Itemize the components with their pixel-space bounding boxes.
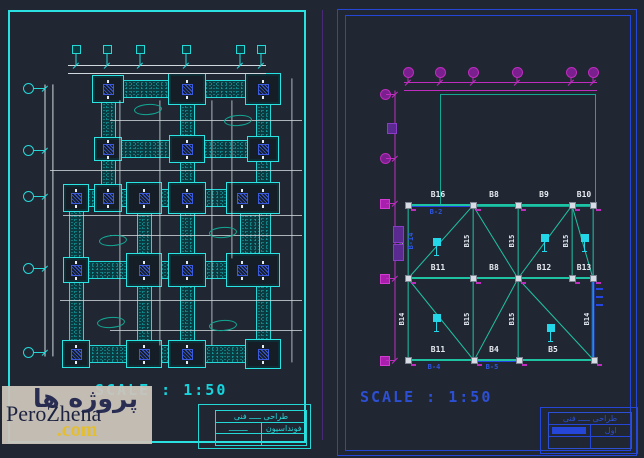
beam-node — [592, 358, 597, 363]
grid-bubble — [468, 67, 479, 78]
beam-label: B11 — [431, 263, 445, 272]
grid-bubble — [435, 67, 446, 78]
node-tick — [575, 209, 580, 211]
section-mark-icon — [547, 324, 555, 332]
beam-label-rotated: B15 — [463, 313, 471, 326]
upper-storey-outline — [440, 94, 596, 207]
beam — [408, 277, 473, 278]
beam — [592, 205, 593, 278]
right-title-row3-left — [549, 437, 590, 448]
beam-label: B5 — [548, 345, 558, 354]
node-tick — [575, 282, 580, 284]
dim-tick — [392, 275, 399, 282]
beam-node — [591, 203, 596, 208]
beam-label: B13 — [577, 263, 591, 272]
grid-bubble — [380, 199, 390, 209]
right-title-filled-bar — [552, 427, 586, 434]
beam-node — [517, 358, 522, 363]
section-mark-foot — [582, 251, 587, 252]
beam-label: B9 — [539, 190, 549, 199]
beam-label: B12 — [537, 263, 551, 272]
beam-node — [570, 203, 575, 208]
node-tick — [411, 282, 416, 284]
beam-label: B4 — [489, 345, 499, 354]
beam — [407, 205, 408, 360]
beam-label-rotated: B14 — [583, 313, 591, 326]
beam-node — [406, 358, 411, 363]
left-title-row3-left — [216, 434, 261, 445]
grid-bubble — [566, 67, 577, 78]
node-tick — [476, 209, 481, 211]
beam-node — [516, 203, 521, 208]
beam-label: B11 — [431, 345, 445, 354]
beam-node — [570, 276, 575, 281]
highlighted-beam — [592, 278, 595, 360]
node-tick — [596, 282, 601, 284]
node-tick — [411, 364, 416, 366]
right-title-row3-right — [590, 437, 632, 448]
grid-bubble — [512, 67, 523, 78]
grid-bubble — [380, 89, 391, 100]
section-mark-foot — [548, 341, 553, 342]
beam — [472, 205, 473, 360]
dim-tick — [392, 357, 399, 364]
beam-label-rotated: B15 — [508, 313, 516, 326]
beam-node — [591, 276, 596, 281]
beam — [408, 359, 474, 360]
node-tick — [522, 364, 527, 366]
dim-tick — [470, 79, 477, 86]
section-mark-icon — [433, 314, 441, 322]
beam-node — [471, 276, 476, 281]
left-title-row3-right — [261, 434, 307, 445]
dim-tick — [392, 91, 399, 98]
dim-tick — [405, 79, 412, 86]
node-tick — [596, 209, 601, 211]
beam-sub-label: B-2 — [430, 208, 443, 216]
right-title-row2-right: اول — [590, 425, 632, 436]
dimension-line — [404, 90, 597, 91]
right-title-row1: طراحی ـــــ فنی — [549, 413, 631, 424]
grid-bubble — [380, 274, 390, 284]
beam-label: B8 — [489, 263, 499, 272]
node-tick — [521, 209, 526, 211]
beam — [592, 278, 593, 360]
beam-label-rotated: B14 — [398, 313, 406, 326]
node-tick — [597, 364, 602, 366]
wall-section-block — [387, 123, 397, 134]
wall-section-block — [393, 226, 404, 243]
beam-sub-label: B-14 — [407, 233, 415, 250]
beam-sub-label: B-4 — [428, 363, 441, 371]
rebar-tick — [596, 304, 603, 306]
right-title-row2-left — [549, 425, 590, 436]
beam — [517, 205, 518, 360]
beam-label: B8 — [489, 190, 499, 199]
grid-bubble — [588, 67, 599, 78]
grid-bubble — [403, 67, 414, 78]
left-title-row2-left: ــــــــ — [216, 423, 261, 434]
node-tick — [477, 364, 482, 366]
section-mark-icon — [581, 234, 589, 242]
beam-node — [406, 203, 411, 208]
beam — [571, 205, 572, 278]
beam — [474, 359, 519, 360]
dimension-line — [404, 82, 597, 83]
dim-tick — [568, 79, 575, 86]
beam-label-rotated: B15 — [463, 235, 471, 248]
drawing-canvas: B16B8B9B10B11B8B12B13B11B4B5B15B14B15B15… — [0, 0, 644, 458]
beam-node — [472, 358, 477, 363]
left-title-block-table: طراحی ـــــ فنی ــــــــ فونداسیون — [215, 410, 307, 446]
beam-label: B10 — [577, 190, 591, 199]
section-mark-icon — [541, 234, 549, 242]
grid-bubble — [380, 153, 391, 164]
beam-label-rotated: B15 — [562, 235, 570, 248]
watermark: پروژه ها PeroZhena .com — [2, 386, 152, 444]
section-mark-foot — [542, 251, 547, 252]
section-mark-icon — [433, 238, 441, 246]
beam-node — [516, 276, 521, 281]
beam — [519, 359, 594, 360]
rebar-tick — [596, 288, 603, 290]
wall-section-block — [393, 244, 404, 261]
node-tick — [476, 282, 481, 284]
beam — [518, 277, 572, 278]
beam-label: B16 — [431, 190, 445, 199]
beam-node — [406, 276, 411, 281]
dim-tick — [437, 79, 444, 86]
highlighted-beam — [474, 359, 519, 362]
dim-tick — [514, 79, 521, 86]
rebar-tick — [596, 296, 603, 298]
beam-sub-label: B-5 — [486, 363, 499, 371]
section-mark-foot — [434, 255, 439, 256]
section-mark-foot — [434, 331, 439, 332]
right-title-block-table: طراحی ـــــ فنی اول — [548, 412, 632, 449]
beam-label-rotated: B15 — [508, 235, 516, 248]
beam-node — [471, 203, 476, 208]
dim-tick — [392, 155, 399, 162]
watermark-tld-text: .com — [57, 421, 98, 439]
right-scale-label: SCALE : 1:50 — [360, 388, 492, 406]
left-title-row1: طراحی ـــــ فنی — [216, 411, 306, 422]
dim-tick — [590, 79, 597, 86]
dim-tick — [392, 200, 399, 207]
node-tick — [411, 209, 416, 211]
beam — [473, 277, 518, 278]
left-title-row2-right: فونداسیون — [261, 423, 307, 434]
node-tick — [521, 282, 526, 284]
grid-bubble — [380, 356, 390, 366]
